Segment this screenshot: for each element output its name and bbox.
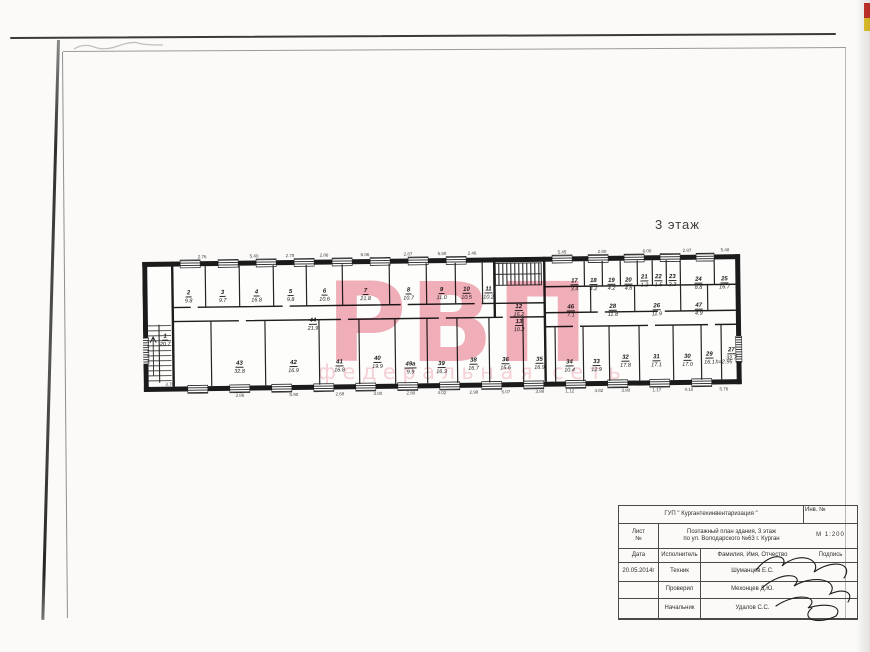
dimension-label: 2.46 bbox=[462, 251, 482, 256]
org-name: ГУП " Кургантехинвентаризация " bbox=[619, 506, 804, 524]
dimension-label: 5.88 bbox=[432, 251, 452, 256]
room-label: 474.9 bbox=[684, 295, 714, 318]
dimension-label: 2.76 bbox=[192, 254, 212, 259]
header-date: Дата bbox=[619, 549, 659, 563]
dimension-label: 2.78 bbox=[280, 253, 300, 258]
sheet-top-border bbox=[10, 33, 836, 39]
room-label: 3117.1 bbox=[641, 346, 671, 369]
room-label: 120.7 bbox=[150, 326, 180, 349]
room-label: 39.7 bbox=[207, 282, 237, 305]
document-title: Поэтажный план здания, 3 этажпо ул. Воло… bbox=[659, 524, 804, 549]
dimension-label: 2.87 bbox=[677, 248, 697, 253]
dimension-label: 5.40 bbox=[244, 253, 264, 258]
date-empty-2 bbox=[619, 599, 659, 619]
sheet-inner-border-top bbox=[63, 47, 846, 52]
dimension-label: 3.80 bbox=[616, 388, 636, 393]
date-empty-1 bbox=[619, 582, 659, 599]
dimension-label: 2.80 bbox=[592, 249, 612, 254]
dimension-label: 3.88 bbox=[530, 389, 550, 394]
signature-cell-1 bbox=[804, 563, 857, 582]
dimension-label: 3.86 bbox=[230, 393, 250, 398]
room-label: 59.8 bbox=[275, 281, 305, 304]
room-label: 29.8 bbox=[173, 282, 203, 305]
sheet-inner-border-left bbox=[62, 52, 68, 618]
room-label: 4332.8 bbox=[224, 353, 254, 376]
dimension-label: 5.76 bbox=[714, 386, 734, 391]
room-label: 416.8 bbox=[241, 281, 271, 304]
dimension-label: 1.17 bbox=[647, 387, 667, 392]
date-value: 20.05.2014г bbox=[619, 563, 659, 582]
header-name: Фамилия, Имя, Отчество bbox=[701, 549, 804, 563]
dimension-label: 6.00 bbox=[637, 248, 657, 253]
header-role: Исполнитель bbox=[659, 549, 701, 563]
dimension-label: 2.86 bbox=[314, 252, 334, 257]
dimension-label: 5.90 bbox=[284, 392, 304, 397]
dimension-label: 5.48 bbox=[715, 247, 735, 252]
pencil-scribble bbox=[72, 40, 167, 54]
scan-edge-shadow bbox=[856, 0, 870, 652]
inventory-number-label: Инв. № bbox=[804, 506, 857, 524]
room-label: 2516.7 bbox=[709, 268, 739, 291]
header-signature: Подпись bbox=[804, 549, 857, 563]
dimension-label: 2.98 bbox=[464, 390, 484, 395]
room-label: 4216.9 bbox=[278, 352, 308, 375]
dimension-label: 5.45 bbox=[552, 249, 572, 254]
dimension-label: 2.87 bbox=[398, 251, 418, 256]
room-label: 4421.9 bbox=[298, 310, 328, 333]
role-checked: Проверил bbox=[659, 582, 701, 599]
signature-cell-2 bbox=[804, 582, 857, 599]
dimension-label: 6.06 bbox=[355, 252, 375, 257]
dimension-label: 4.82 bbox=[589, 388, 609, 393]
title-block: ГУП " Кургантехинвентаризация " Инв. № Л… bbox=[618, 505, 858, 620]
signature-cell-3 bbox=[804, 599, 857, 619]
ceiling-height-note: h=2.95 bbox=[715, 359, 732, 365]
floor-title: 3 этаж bbox=[655, 217, 700, 232]
role-chief: Начальник bbox=[659, 599, 701, 619]
dimension-label: 3.00 bbox=[368, 391, 388, 396]
name-chief: Удалов С.С. bbox=[701, 599, 804, 619]
scale-value: М 1:200 bbox=[804, 524, 857, 549]
room-label: 2611.9 bbox=[642, 295, 672, 318]
scanned-sheet: 3 этаж bbox=[0, 0, 870, 652]
dimension-label: 1.12 bbox=[560, 388, 580, 393]
dimension-label: 2.80 bbox=[401, 390, 421, 395]
dimension-label: 2.68 bbox=[330, 391, 350, 396]
name-checked: Мехонцев Д.Ю. bbox=[701, 582, 804, 599]
sheet-number-cell: Лист№ bbox=[619, 524, 659, 549]
room-label: 2811.8 bbox=[598, 296, 628, 319]
role-technician: Техник bbox=[659, 563, 701, 582]
dimension-label: 4.02 bbox=[432, 390, 452, 395]
watermark-subtitle: федеральная сеть bbox=[318, 360, 627, 384]
paper-crease-line bbox=[41, 40, 60, 620]
dimension-label: 4.10 bbox=[679, 387, 699, 392]
name-technician: Шуманцев Е.С. bbox=[701, 563, 804, 582]
dimension-label: 5.07 bbox=[496, 389, 516, 394]
dimension-label: 3.70 bbox=[160, 382, 180, 387]
